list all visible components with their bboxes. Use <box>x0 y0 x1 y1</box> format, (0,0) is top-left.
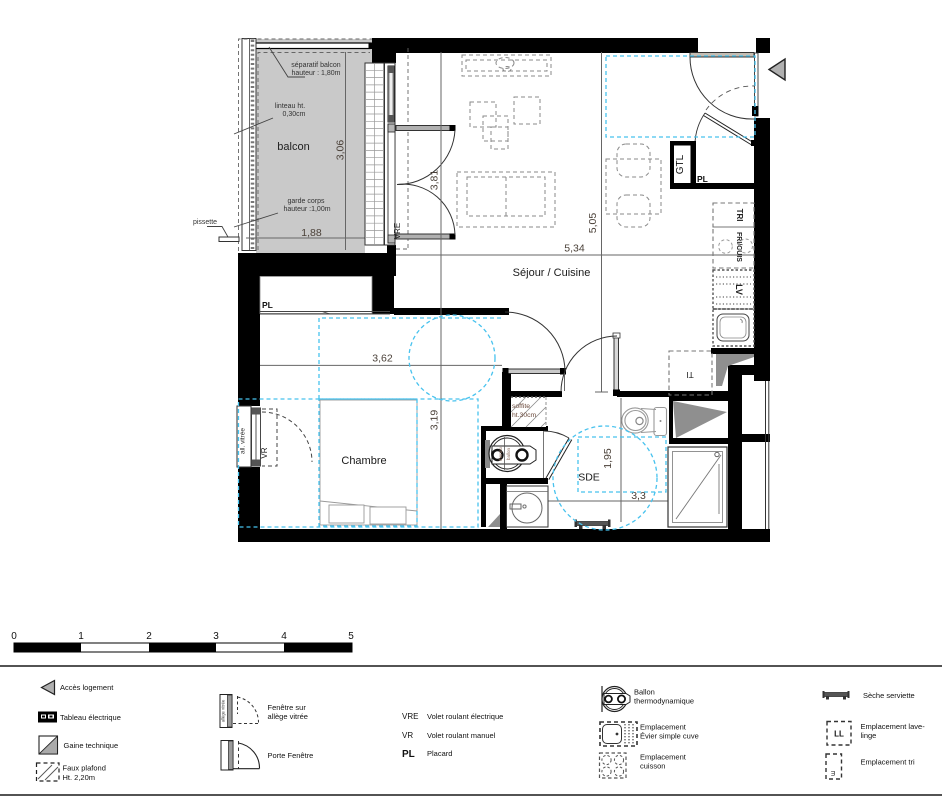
svg-text:2: 2 <box>146 631 152 642</box>
svg-text:Fenêtre sur: Fenêtre sur <box>268 703 307 712</box>
svg-text:ballon: ballon <box>506 448 511 461</box>
svg-text:LL: LL <box>834 730 844 739</box>
svg-text:Tableau électrique: Tableau électrique <box>60 713 121 722</box>
svg-text:VRE: VRE <box>402 712 418 721</box>
svg-text:Emplacement: Emplacement <box>640 723 687 732</box>
svg-text:5,34: 5,34 <box>564 243 585 255</box>
svg-text:pissette: pissette <box>193 219 217 226</box>
svg-text:VR: VR <box>260 447 269 458</box>
svg-text:Accès logement: Accès logement <box>60 683 114 692</box>
svg-text:Gaine technique: Gaine technique <box>64 741 119 750</box>
svg-text:PL: PL <box>697 174 708 184</box>
svg-text:Ballon: Ballon <box>634 688 655 697</box>
svg-text:soffite: soffite <box>512 403 530 410</box>
svg-text:Porte Fenêtre: Porte Fenêtre <box>268 751 314 760</box>
svg-text:allège vitrée: allège vitrée <box>221 699 226 722</box>
svg-text:5,05: 5,05 <box>587 213 599 234</box>
svg-text:thermodynamique: thermodynamique <box>634 697 694 706</box>
svg-text:Évier simple cuve: Évier simple cuve <box>640 732 699 741</box>
svg-text:PL: PL <box>402 749 415 760</box>
svg-text:3,81: 3,81 <box>429 170 441 191</box>
svg-text:Volet roulant électrique: Volet roulant électrique <box>427 712 503 721</box>
svg-text:Emplacement tri: Emplacement tri <box>861 758 916 767</box>
svg-text:4: 4 <box>281 631 287 642</box>
svg-text:3: 3 <box>213 631 219 642</box>
svg-text:0: 0 <box>11 631 17 642</box>
svg-text:all. vitrée: all. vitrée <box>240 428 247 454</box>
svg-text:Emplacement: Emplacement <box>640 753 687 762</box>
svg-text:garde corps: garde corps <box>288 198 325 205</box>
svg-text:TI: TI <box>686 370 694 380</box>
svg-text:linteau ht.: linteau ht. <box>275 103 305 110</box>
svg-text:cuisson: cuisson <box>640 762 665 771</box>
svg-text:E: E <box>830 769 835 776</box>
svg-text:5: 5 <box>348 631 354 642</box>
svg-text:allège vitrée: allège vitrée <box>268 712 308 721</box>
svg-text:3,62: 3,62 <box>372 353 393 365</box>
svg-text:Volet roulant manuel: Volet roulant manuel <box>427 731 496 740</box>
svg-text:VRE: VRE <box>393 223 402 239</box>
svg-text:FRI/CUIS: FRI/CUIS <box>735 232 742 262</box>
svg-text:1: 1 <box>78 631 84 642</box>
svg-text:Sèche serviette: Sèche serviette <box>863 691 915 700</box>
svg-text:TRI: TRI <box>735 209 744 222</box>
svg-text:LV: LV <box>734 284 744 295</box>
svg-text:Ht. 2,20m: Ht. 2,20m <box>63 773 96 782</box>
svg-text:hauteur :1,00m: hauteur :1,00m <box>283 206 330 213</box>
svg-text:Faux plafond: Faux plafond <box>63 764 106 773</box>
svg-text:séparatif balcon: séparatif balcon <box>291 62 341 69</box>
svg-text:3,06: 3,06 <box>335 140 347 161</box>
svg-text:SDE: SDE <box>578 472 600 484</box>
svg-text:balcon: balcon <box>277 141 309 153</box>
svg-text:1,95: 1,95 <box>602 448 614 469</box>
svg-text:VR: VR <box>402 731 413 740</box>
svg-text:1,88: 1,88 <box>301 227 322 239</box>
svg-text:Emplacement lave-: Emplacement lave- <box>861 722 926 731</box>
svg-text:ht.30cm: ht.30cm <box>512 412 537 419</box>
svg-text:0,30cm: 0,30cm <box>283 111 306 118</box>
svg-text:Chambre: Chambre <box>341 455 386 467</box>
svg-text:linge: linge <box>861 731 877 740</box>
svg-text:3,19: 3,19 <box>429 410 441 431</box>
svg-text:Placard: Placard <box>427 749 452 758</box>
svg-text:hauteur : 1,80m: hauteur : 1,80m <box>291 70 340 77</box>
svg-text:PL: PL <box>262 300 273 310</box>
svg-text:Séjour / Cuisine: Séjour / Cuisine <box>513 267 591 279</box>
svg-text:GTL: GTL <box>675 154 686 174</box>
svg-text:thermo: thermo <box>498 447 503 462</box>
